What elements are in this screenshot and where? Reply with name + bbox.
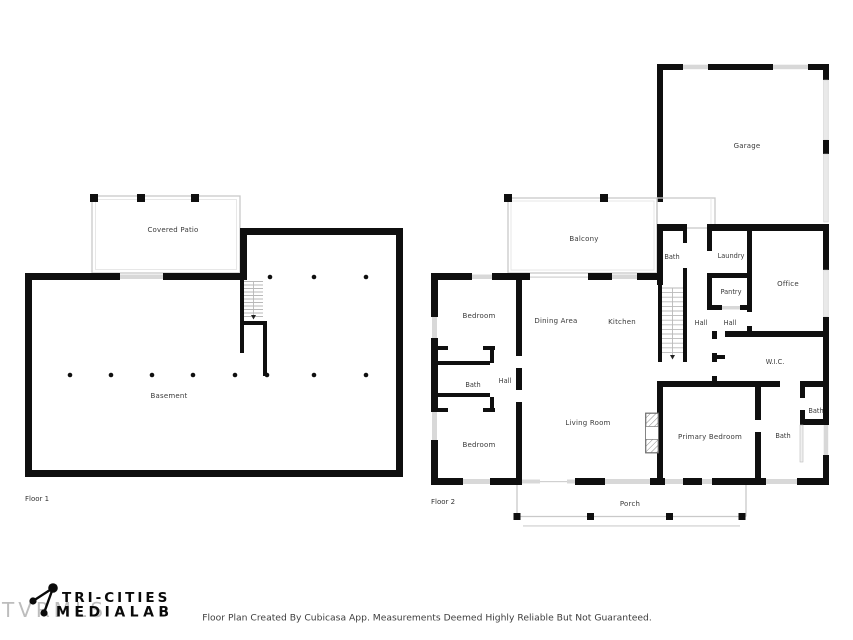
upper-bath-label: Bath bbox=[664, 253, 679, 261]
floor-plan-canvas: Covered Patio Basement Floor 1 Garage bbox=[0, 0, 853, 640]
footer: TVRMLS TRI-CITIES MEDIALAB Floor Plan Cr… bbox=[1, 583, 652, 623]
laundry-pantry-walls bbox=[707, 231, 752, 310]
floor-plan-page: Covered Patio Basement Floor 1 Garage bbox=[0, 0, 853, 640]
small-bath-label: Bath bbox=[808, 407, 823, 415]
wic-label: W.I.C. bbox=[766, 358, 785, 366]
balcony-post bbox=[504, 194, 512, 202]
primary-suite-walls bbox=[657, 381, 829, 478]
bath-left-label: Bath bbox=[465, 381, 480, 389]
shower-glass bbox=[800, 425, 803, 462]
balcony-label: Balcony bbox=[569, 235, 598, 243]
left-bath-walls bbox=[438, 346, 495, 412]
logo-line2: MEDIALAB bbox=[56, 605, 174, 621]
floor2-stairs bbox=[658, 285, 687, 362]
floor1-columns bbox=[68, 275, 369, 378]
floor2-plan: Garage Balcony Bath bbox=[431, 64, 829, 527]
patio-post bbox=[90, 194, 98, 202]
pantry-label: Pantry bbox=[720, 288, 741, 296]
laundry-label: Laundry bbox=[718, 252, 745, 260]
porch-label: Porch bbox=[620, 500, 640, 508]
garage-label: Garage bbox=[734, 142, 761, 150]
porch-post bbox=[666, 513, 673, 520]
hall-pantry-label: Hall bbox=[724, 319, 737, 327]
basement-label: Basement bbox=[151, 392, 188, 400]
floor1-walls bbox=[25, 228, 403, 477]
floor1-stairs bbox=[240, 280, 267, 376]
logo-node-icon bbox=[48, 583, 58, 593]
hall-stairs-label: Hall bbox=[695, 319, 708, 327]
primary-bedroom-label: Primary Bedroom bbox=[678, 433, 742, 441]
covered-patio-label: Covered Patio bbox=[147, 226, 198, 234]
primary-bath-label: Bath bbox=[775, 432, 790, 440]
patio-post bbox=[137, 194, 145, 202]
fireplace bbox=[646, 413, 659, 453]
porch-post bbox=[514, 513, 521, 520]
living-room-label: Living Room bbox=[565, 419, 610, 427]
bedroom-top-label: Bedroom bbox=[462, 312, 495, 320]
porch-post bbox=[739, 513, 746, 520]
dining-area-label: Dining Area bbox=[534, 317, 577, 325]
floor2-label: Floor 2 bbox=[431, 498, 455, 506]
bedroom-bottom-label: Bedroom bbox=[462, 441, 495, 449]
floor1-plan: Covered Patio Basement Floor 1 bbox=[25, 194, 403, 503]
floor2-left-walls bbox=[431, 273, 657, 485]
office-label: Office bbox=[777, 280, 799, 288]
logo-node-icon bbox=[29, 597, 36, 604]
porch-post bbox=[587, 513, 594, 520]
floor2-top-right-walls bbox=[657, 224, 829, 231]
logo-node-icon bbox=[40, 609, 47, 616]
disclaimer-text: Floor Plan Created By Cubicasa App. Meas… bbox=[202, 613, 652, 624]
floor1-label: Floor 1 bbox=[25, 495, 49, 503]
floor2-bottom-wall bbox=[431, 478, 829, 485]
patio-post bbox=[191, 194, 199, 202]
porch-shadow bbox=[523, 525, 740, 527]
kitchen-label: Kitchen bbox=[608, 318, 636, 326]
balcony-post bbox=[600, 194, 608, 202]
hall-left-label: Hall bbox=[499, 377, 512, 385]
